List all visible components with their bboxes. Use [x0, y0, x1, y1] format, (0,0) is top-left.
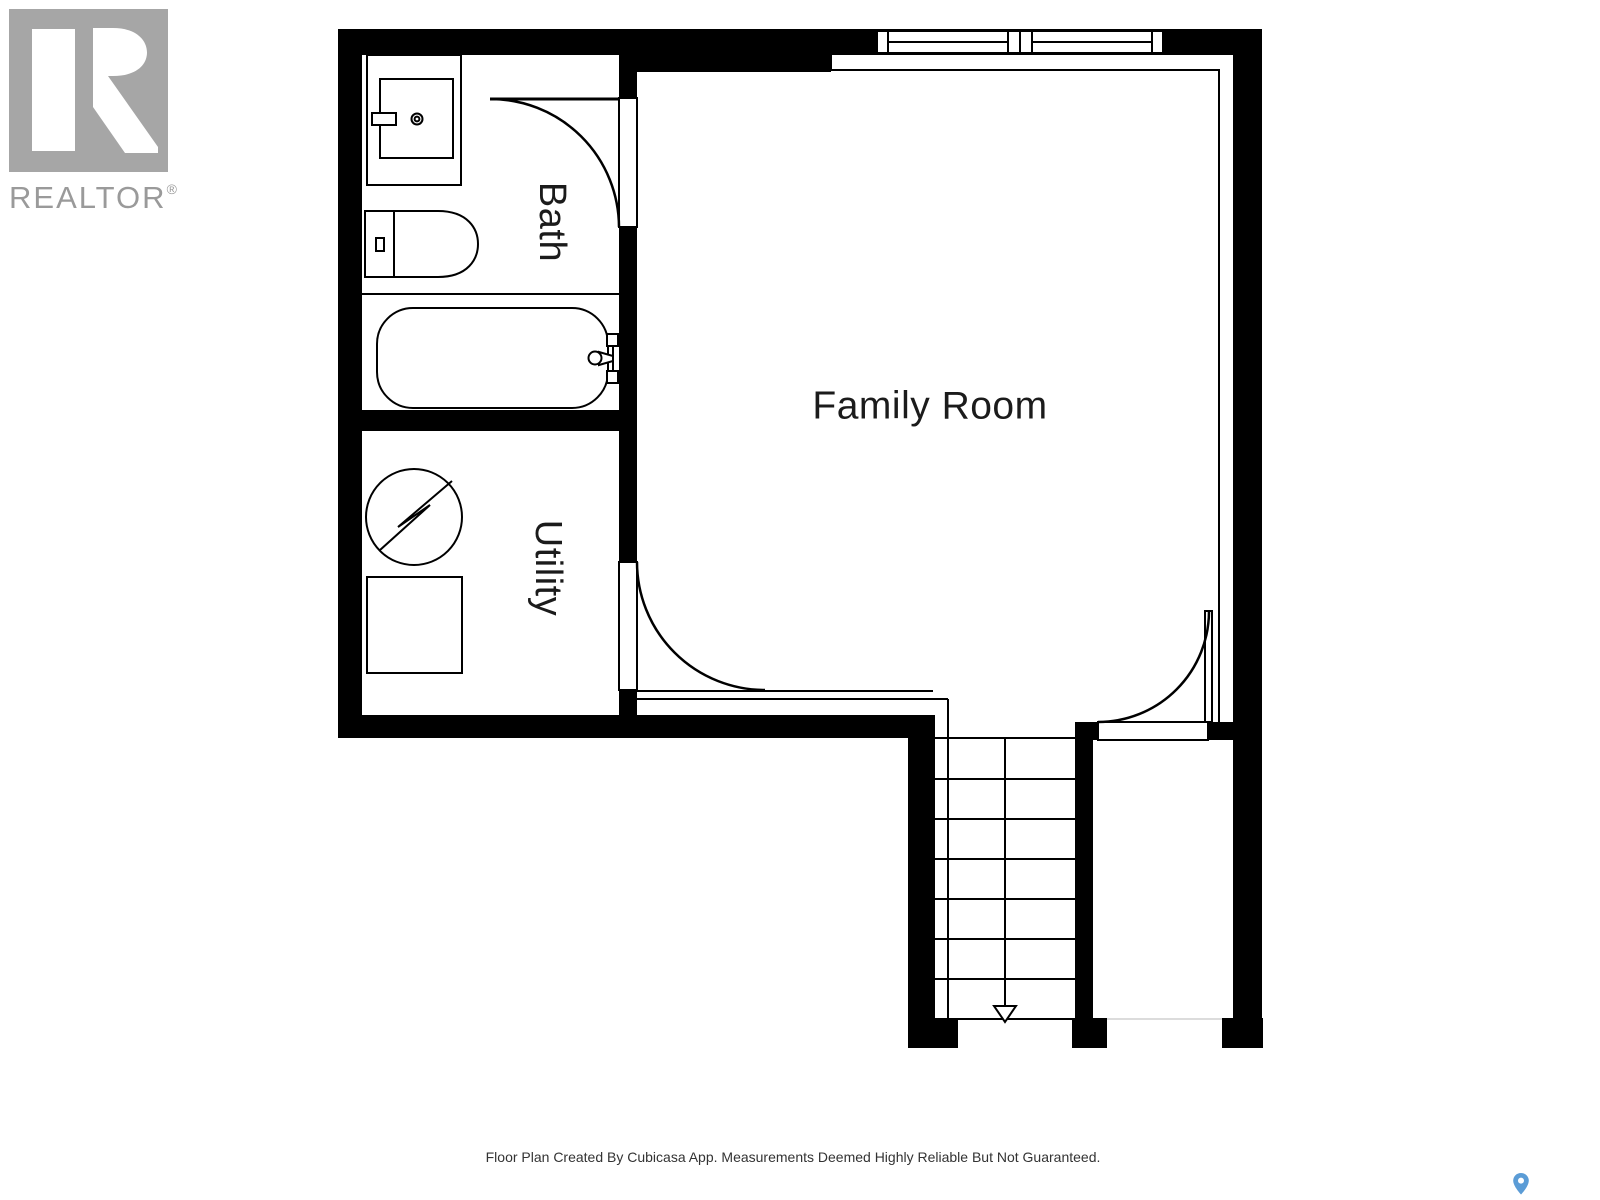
staircase	[935, 699, 1075, 1022]
realtor-logo-block: REALTOR®	[9, 9, 209, 213]
family-room-door-opening	[1098, 722, 1208, 740]
registered-mark: ®	[167, 181, 177, 197]
wall-bath-utility-divider	[362, 410, 637, 431]
tub-faucet-handle	[607, 371, 618, 383]
walls	[338, 29, 1263, 1048]
window-double	[877, 31, 1163, 53]
realtor-r-logo-icon	[9, 9, 168, 172]
wall-interior-mid	[619, 227, 637, 562]
wall-interior-upper	[619, 55, 637, 98]
wall-right-foot	[1222, 1018, 1263, 1048]
footer-disclaimer: Floor Plan Created By Cubicasa App. Meas…	[486, 1149, 1101, 1165]
logo-word-text: REALTOR	[9, 180, 167, 215]
map-pin-center-dot	[1518, 1178, 1524, 1184]
tub-faucet-handle	[607, 334, 618, 346]
utility-fixtures	[366, 469, 462, 673]
bath-door-opening	[619, 98, 637, 227]
wall-left	[338, 29, 362, 738]
wall-right	[1233, 29, 1262, 1018]
bath-fixtures	[365, 55, 618, 408]
sink-faucet-icon	[372, 113, 396, 125]
floor-plan-drawing	[0, 0, 1600, 1200]
map-pin-shape	[1513, 1173, 1529, 1195]
floor-plan-page: Bath Utility Family Room REALTOR® Floor …	[0, 0, 1600, 1200]
room-label-family-room: Family Room	[812, 387, 1047, 426]
map-pin-icon	[1511, 1171, 1531, 1197]
wall-stair-left-foot	[908, 1018, 958, 1048]
wall-stair-right	[1075, 740, 1093, 1018]
wall-stair-right-top	[1075, 722, 1098, 740]
room-label-utility: Utility	[529, 520, 567, 616]
family-room-door-swing-arc	[1098, 611, 1209, 722]
room-label-bath: Bath	[533, 182, 571, 262]
utility-door-opening	[619, 562, 637, 690]
logo-r-bar	[32, 29, 75, 151]
wall-bottom	[338, 715, 935, 738]
realtor-logo-text: REALTOR®	[9, 182, 209, 213]
toilet-bowl	[394, 211, 478, 277]
wall-stair-left	[908, 738, 935, 1018]
wall-stair-right-foot	[1072, 1018, 1107, 1048]
wall-door-jamb-bottom-right	[1208, 722, 1233, 740]
lightning-bolt-icon	[380, 481, 452, 550]
tub-spout-icon	[589, 352, 602, 365]
bathtub	[377, 308, 608, 408]
appliance-square	[367, 577, 462, 673]
wall-top-thick-band	[637, 55, 831, 72]
floor-edge-lines	[362, 55, 1219, 722]
wall-interior-lower	[619, 690, 637, 715]
utility-door-swing-arc	[637, 562, 765, 690]
toilet-tank	[365, 211, 394, 277]
